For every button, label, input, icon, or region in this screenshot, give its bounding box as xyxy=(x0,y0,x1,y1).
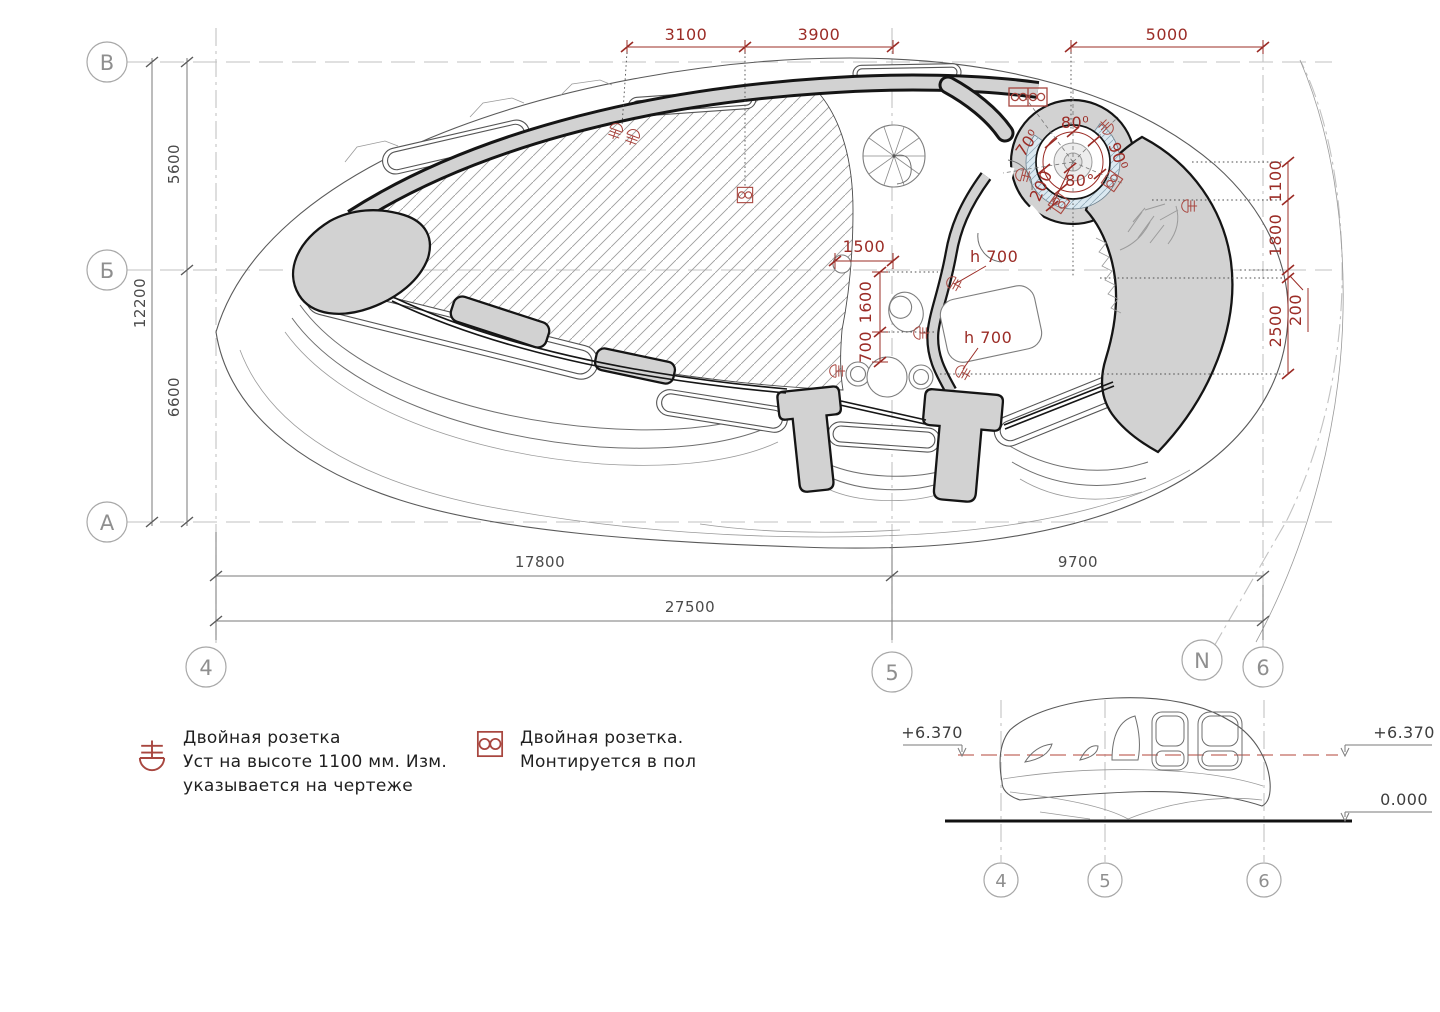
dim-inner-1600: 1600 xyxy=(856,281,875,324)
dim-top-3900: 3900 xyxy=(798,25,841,44)
height-mark-2: h 700 xyxy=(964,328,1012,347)
legend-item-1-line-2: Уст на высоте 1100 мм. Изм. xyxy=(183,752,447,772)
dim-left-6600: 6600 xyxy=(165,377,183,417)
height-mark-1: h 700 xyxy=(970,247,1018,266)
angle-80-bottom: 80° xyxy=(1065,171,1095,190)
elevation-body xyxy=(1000,698,1270,819)
legend-item-1-line-3: указывается на чертеже xyxy=(183,776,413,796)
dim-inner-1500: 1500 xyxy=(843,237,886,256)
dim-left-12200: 12200 xyxy=(131,278,149,328)
elevation-axis-4: 4 xyxy=(995,871,1006,892)
dim-bottom-27500: 27500 xyxy=(665,598,715,616)
dim-top-5000: 5000 xyxy=(1146,25,1189,44)
bed xyxy=(937,283,1044,366)
axis-col-n: N xyxy=(1194,649,1210,673)
axis-row-a: А xyxy=(100,511,115,535)
dim-right-1100: 1100 xyxy=(1266,160,1285,203)
legend-item-2-line-1: Двойная розетка. xyxy=(520,728,683,748)
dim-top-3100: 3100 xyxy=(665,25,708,44)
legend-wall-socket-icon xyxy=(140,740,164,770)
floor-plan-svg: В Б А 4 5 N 6 xyxy=(0,0,1440,1012)
level-right: +6.370 xyxy=(1373,723,1435,742)
wall-socket-icon xyxy=(914,327,929,340)
axis-row-v: В xyxy=(100,51,114,75)
wall-socket-icon xyxy=(953,363,973,382)
angle-80-top: 80⁰ xyxy=(1061,113,1089,132)
dim-inner-700: 700 xyxy=(856,331,875,363)
level-left: +6.370 xyxy=(901,723,963,742)
legend-floor-socket-icon xyxy=(478,732,502,756)
elevation-axis-5: 5 xyxy=(1099,871,1110,892)
dim-left-5600: 5600 xyxy=(165,144,183,184)
axis-col-6: 6 xyxy=(1256,656,1269,680)
legend-item-2-line-2: Монтируется в пол xyxy=(520,752,696,772)
axis-col-5: 5 xyxy=(885,661,898,685)
architectural-drawing-page: В Б А 4 5 N 6 xyxy=(0,0,1440,1012)
legend-item-1-line-1: Двойная розетка xyxy=(183,728,341,748)
axis-col-4: 4 xyxy=(199,656,212,680)
dim-right-1800: 1800 xyxy=(1266,214,1285,257)
deck-slot-center xyxy=(827,421,940,453)
dim-bottom-17800: 17800 xyxy=(515,553,565,571)
axis-row-b: Б xyxy=(100,259,114,283)
elevation-axis-6: 6 xyxy=(1258,871,1269,892)
legend: Двойная розетка Уст на высоте 1100 мм. И… xyxy=(140,728,696,796)
dim-right-2500: 2500 xyxy=(1266,305,1285,348)
deck-slot-mid xyxy=(655,388,789,434)
spiral-stair xyxy=(863,125,925,187)
level-zero: 0.000 xyxy=(1380,790,1428,809)
dim-bottom-9700: 9700 xyxy=(1058,553,1098,571)
elevation-view: +6.370 +6.370 0.000 4 5 6 xyxy=(901,698,1435,897)
dim-right-200: 200 xyxy=(1286,294,1305,326)
